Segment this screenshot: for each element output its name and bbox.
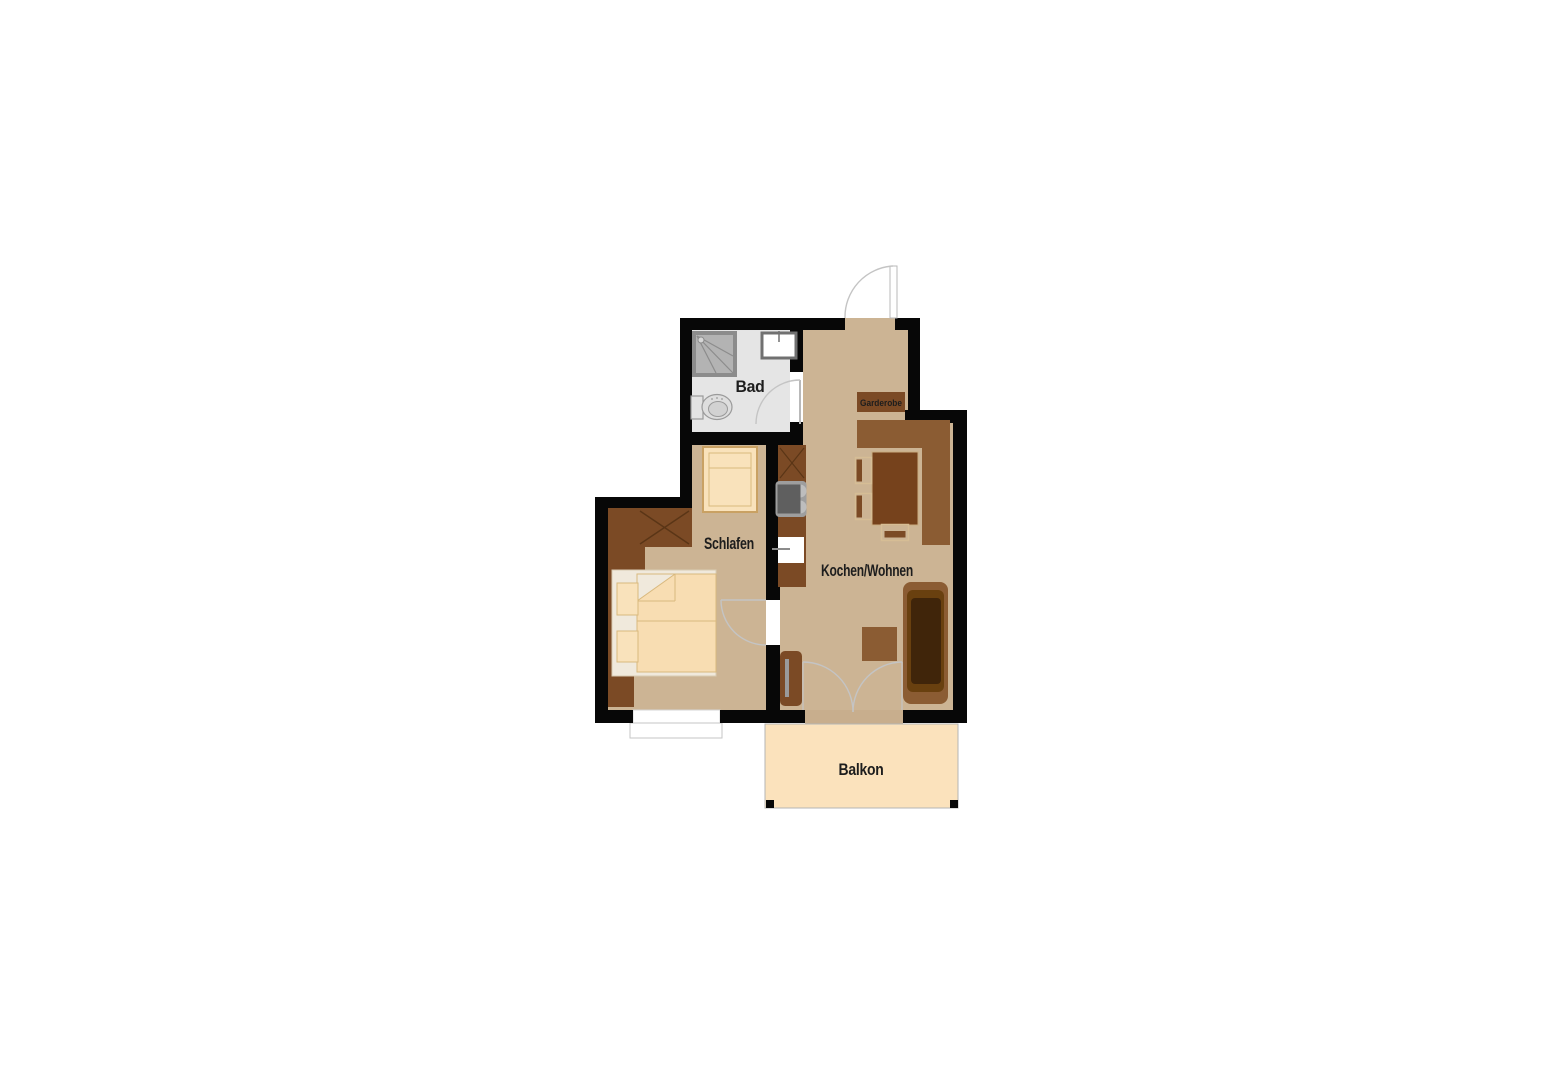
- wall-segment: [595, 710, 633, 723]
- wall-segment: [595, 497, 608, 723]
- kochen-wohnen-label: Kochen/Wohnen: [821, 561, 913, 580]
- schlafen-label: Schlafen: [704, 534, 754, 553]
- dining-table: [872, 452, 918, 525]
- cot: [703, 447, 757, 512]
- wall-segment: [680, 432, 803, 445]
- double-bed: [612, 570, 716, 676]
- tv-sideboard: [780, 651, 802, 706]
- window-glass: [633, 710, 720, 723]
- garderobe: Garderobe: [857, 392, 905, 412]
- nightstand: [617, 631, 638, 662]
- sofa: [903, 582, 948, 704]
- floorplan: Garderobe: [0, 0, 1557, 1080]
- balcony-post-right: [950, 800, 958, 808]
- wall-segment: [908, 318, 920, 423]
- stove: [776, 481, 807, 517]
- window-sill: [630, 723, 722, 738]
- bedroom-window: [630, 710, 722, 738]
- entry-door: [845, 266, 897, 318]
- floorplan-page: Garderobe: [0, 0, 1557, 1080]
- wall-segment: [953, 410, 967, 723]
- toilet: [691, 395, 732, 420]
- wall-segment: [680, 318, 845, 330]
- nightstand: [617, 583, 638, 615]
- wall-segment: [680, 318, 692, 510]
- entry-threshold: [845, 318, 895, 330]
- garderobe-label: Garderobe: [860, 398, 902, 409]
- balkon-label: Balkon: [839, 760, 884, 779]
- balcony-door-sill: [805, 710, 903, 725]
- wall-segment: [766, 445, 780, 600]
- bad-label: Bad: [736, 377, 765, 396]
- bathroom-sink: [762, 331, 796, 358]
- wall-segment: [790, 422, 803, 445]
- tv: [785, 659, 789, 697]
- balcony-post-left: [766, 800, 774, 808]
- shower: [694, 333, 735, 375]
- wall-segment: [766, 645, 780, 723]
- shower-drain: [698, 337, 704, 343]
- coffee-table: [862, 627, 897, 661]
